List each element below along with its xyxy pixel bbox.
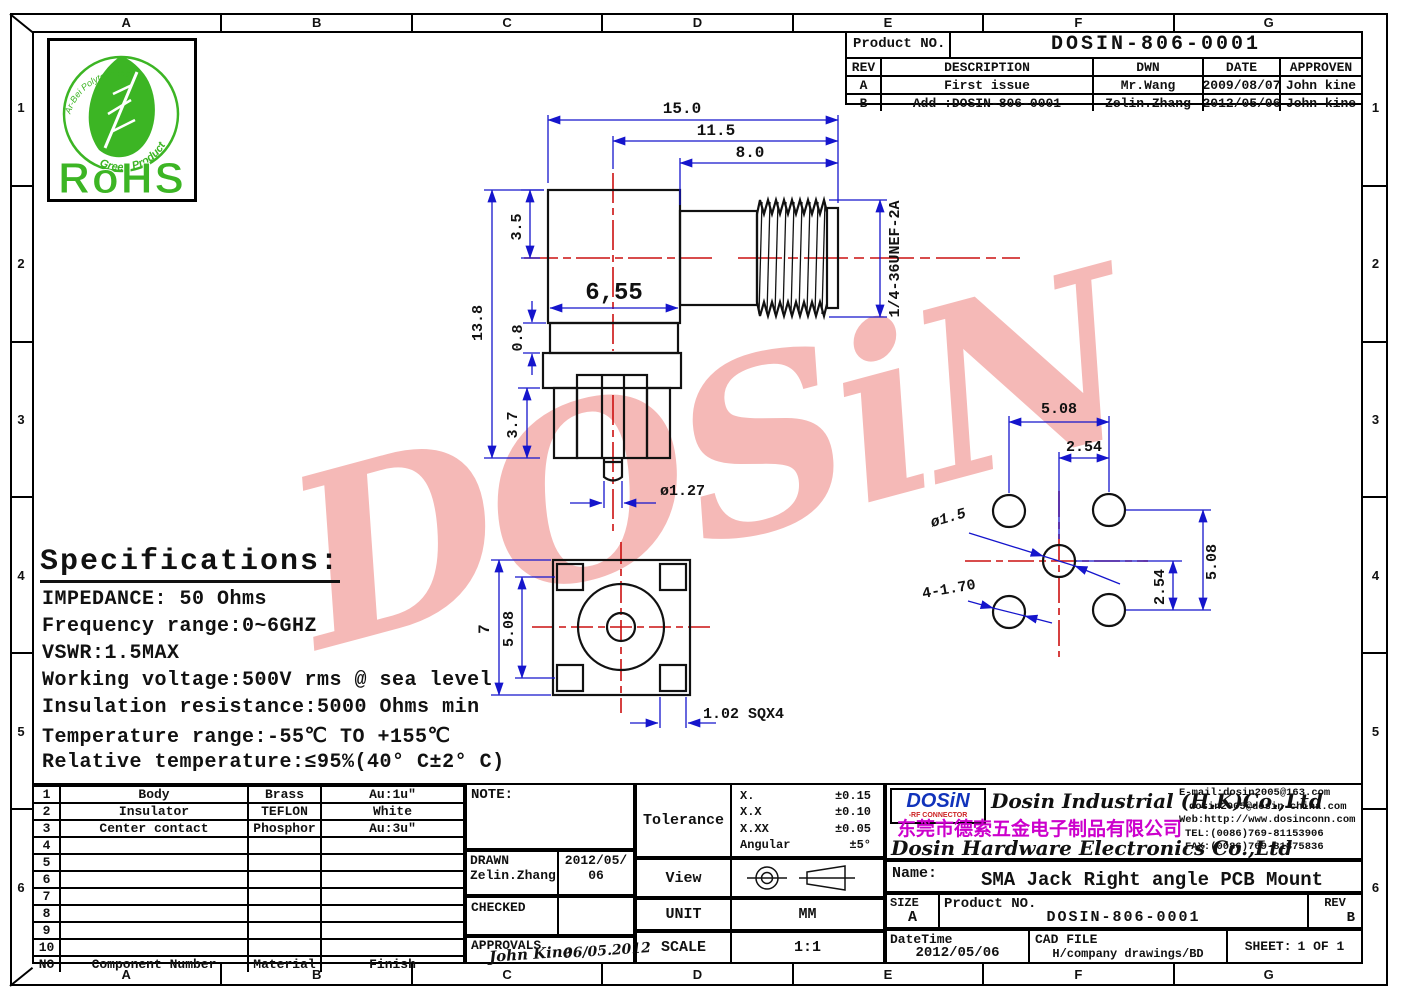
pcb-hole [1093, 594, 1125, 626]
dim-2-54-pcb-right: 2.54 [1152, 569, 1169, 605]
grid-label: 1 [1363, 31, 1388, 185]
parts-table-cell [247, 940, 320, 955]
dim-0-8: 0.8 [510, 324, 527, 351]
dosin-logo-text: DOSiN [892, 790, 984, 812]
grid-label: 4 [1363, 496, 1388, 652]
grid-label: 6 [1363, 808, 1388, 964]
contact-email-1: E-mail:dosin2005@163.com [1179, 787, 1359, 801]
grid-label: 2 [1363, 185, 1388, 341]
parts-table-row: 10 [34, 938, 463, 955]
parts-table-cell: 8 [34, 906, 59, 921]
parts-table-cell: 3 [34, 821, 59, 836]
parts-table-cell [59, 838, 247, 853]
parts-table-row: 1BodyBrassAu:1u" [34, 785, 463, 802]
technical-drawing: 15.0 11.5 8.0 3.5 13.8 0.8 3.7 6,55 ø1.2… [420, 95, 1240, 755]
scale-value: 1:1 [732, 933, 883, 962]
parts-table-cell [59, 923, 247, 938]
name-label: Name: [892, 865, 937, 882]
grid-columns-top: ABCDEFG [32, 13, 1363, 31]
dim-2-54-pcb-top: 2.54 [1066, 439, 1102, 456]
dwn-a: Mr.Wang [1092, 77, 1202, 93]
product-no-value: DOSIN-806-0001 [949, 31, 1361, 57]
parts-table-cell: 9 [34, 923, 59, 938]
grid-label: D [601, 13, 791, 31]
parts-table-cell [247, 855, 320, 870]
parts-table-row: 7 [34, 887, 463, 904]
tolerance-box: Tolerance X.±0.15 X.X±0.10 X.XX±0.05 Ang… [635, 783, 885, 858]
dim-11-5: 11.5 [697, 122, 735, 140]
spec-insulation: Insulation resistance:5000 Ohms min [42, 696, 480, 719]
view-box: View [635, 858, 885, 898]
scale-label: SCALE [637, 933, 732, 962]
dim-5-08-pcb-top: 5.08 [1041, 401, 1077, 418]
parts-table-cell: Au:1u" [320, 787, 463, 802]
revision-row-a: A First issue Mr.Wang 2009/08/07 John ki… [847, 75, 1361, 93]
contact-tel: TEL:(0086)769-81153906 [1179, 828, 1359, 842]
parts-table-cell: 7 [34, 889, 59, 904]
parts-table-cell [247, 872, 320, 887]
parts-table-cell: Brass [247, 787, 320, 802]
product-no-label: Product NO. [847, 31, 949, 57]
approven-b: John kine [1279, 95, 1361, 111]
grid-label: F [982, 964, 1172, 984]
dim-8-0: 8.0 [736, 144, 765, 162]
centerlines [524, 173, 1148, 713]
parts-table-cell [247, 923, 320, 938]
parts-table-cell [320, 906, 463, 921]
grid-label: 2 [10, 185, 32, 341]
thread-spec-label: 1/4-36UNEF-2A [887, 200, 904, 317]
note-box: NOTE: [465, 783, 635, 850]
parts-table-cell [59, 855, 247, 870]
spec-vswr: VSWR:1.5MAX [42, 642, 180, 665]
rohs-label: RoHS [58, 154, 186, 202]
rev-header: REV [847, 59, 880, 75]
view-label: View [637, 860, 732, 896]
rev-a: A [847, 77, 880, 93]
size-row: SIZE A Product NO. DOSIN-806-0001 REV B [885, 893, 1363, 929]
parts-table-cell [320, 855, 463, 870]
grid-label: 6 [10, 808, 32, 964]
grid-label: B [220, 13, 410, 31]
dim-15-0: 15.0 [663, 100, 701, 118]
dim-hole-1-5: ø1.5 [929, 506, 968, 532]
tol-angular-name: Angular [740, 838, 790, 852]
contact-fax: FAX:(0086)769-81875836 [1179, 841, 1359, 855]
parts-table-cell: Center contact [59, 821, 247, 836]
contact-email-2: dosin2005@dosin-china.com [1179, 801, 1359, 815]
dim-7: 7 [476, 624, 494, 634]
parts-table-cell: 1 [34, 787, 59, 802]
company-contacts: E-mail:dosin2005@163.com dosin2005@dosin… [1179, 787, 1359, 855]
company-box: DOSiN -RF CONNECTOR Dosin Industrial (H.… [885, 783, 1363, 860]
revision-table: Product NO. DOSIN-806-0001 REV DESCRIPTI… [845, 31, 1363, 105]
footer-row: DateTime 2012/05/06 CAD FILE H/company d… [885, 929, 1363, 964]
dim-13-8: 13.8 [470, 305, 487, 341]
date-a: 2009/08/07 [1202, 77, 1279, 93]
parts-table-cell [59, 906, 247, 921]
parts-table-cell [247, 906, 320, 921]
parts-table-cell [247, 889, 320, 904]
dim-5-08-flange: 5.08 [501, 611, 518, 647]
bottom-view-dimensions [491, 560, 716, 728]
dim-4-holes-1-70: 4-1.70 [921, 577, 977, 603]
parts-table-cell [320, 838, 463, 853]
tol-x-name: X. [740, 789, 754, 803]
dim-5-08-pcb-right: 5.08 [1204, 544, 1221, 580]
parts-table-cell: 6 [34, 872, 59, 887]
tol-xxx-name: X.XX [740, 822, 769, 836]
cad-file-value: H/company drawings/BD [1030, 947, 1226, 961]
title-product-no-value: DOSIN-806-0001 [940, 909, 1307, 926]
parts-table-cell: White [320, 804, 463, 819]
parts-table-cell [320, 940, 463, 955]
drawn-box: DRAWN Zelin.Zhang 2012/05/ 06 [465, 850, 635, 896]
grid-rows-right: 123456 [1363, 31, 1388, 964]
sheet-label: SHEET: [1245, 939, 1292, 954]
rohs-logo: Ar-Bei Polytech Inc. Green Product RoHS [47, 38, 197, 202]
sheet-value: 1 OF 1 [1298, 939, 1345, 954]
grid-label: 3 [10, 341, 32, 497]
datetime-value: 2012/05/06 [887, 945, 1028, 961]
grid-label: 5 [10, 652, 32, 808]
pcb-hole [993, 495, 1025, 527]
unit-value: MM [732, 900, 883, 929]
cad-file-label: CAD FILE [1035, 932, 1097, 947]
side-view-dimensions [484, 115, 887, 508]
parts-table-row: 5 [34, 853, 463, 870]
tol-xx-name: X.X [740, 805, 762, 819]
name-box: Name: SMA Jack Right angle PCB Mount [885, 860, 1363, 893]
approven-a: John kine [1279, 77, 1361, 93]
thread-top [757, 200, 827, 214]
unit-box: UNIT MM [635, 898, 885, 931]
dim-1-02-sqx4: 1.02 SQX4 [703, 706, 784, 723]
grid-label: E [792, 13, 982, 31]
checked-box: CHECKED [465, 896, 635, 936]
dim-1-27: ø1.27 [660, 483, 705, 500]
drawing-sheet: DOSiN ABCDEFG ABCDEFG 123456 123456 Ar-B… [0, 0, 1404, 992]
grid-label: 1 [10, 31, 32, 185]
unit-label: UNIT [637, 900, 732, 929]
grid-label: F [982, 13, 1172, 31]
parts-table-cell: TEFLON [247, 804, 320, 819]
parts-table-cell [320, 872, 463, 887]
parts-table-cell: 2 [34, 804, 59, 819]
spec-impedance: IMPEDANCE: 50 Ohms [42, 588, 267, 611]
dwn-header: DWN [1092, 59, 1202, 75]
parts-table-row: 3Center contactPhosphorAu:3u" [34, 819, 463, 836]
projection-symbol-icon [745, 861, 871, 895]
spec-temperature: Temperature range:-55℃ TO +155℃ [42, 723, 450, 749]
date-header: DATE [1202, 59, 1279, 75]
parts-table-cell: 5 [34, 855, 59, 870]
grid-label: 5 [1363, 652, 1388, 808]
part-name-value: SMA Jack Right angle PCB Mount [947, 869, 1357, 891]
grid-label: 3 [1363, 341, 1388, 497]
pcb-dim-labels: 5.08 2.54 5.08 2.54 ø1.5 4-1.70 [921, 401, 1221, 605]
parts-table-cell: 10 [34, 940, 59, 955]
drawn-date-1: 2012/05/ [559, 853, 633, 868]
title-rev-value: B [1347, 910, 1355, 926]
contact-web: Web:http://www.dosinconn.com [1179, 814, 1359, 828]
note-label: NOTE: [471, 787, 513, 803]
parts-table-cell: Au:3u" [320, 821, 463, 836]
grid-label: 4 [10, 496, 32, 652]
grid-label: C [411, 13, 601, 31]
parts-table-cell [247, 838, 320, 853]
tolerance-label: Tolerance [637, 785, 732, 856]
specifications-title: Specifications: [40, 545, 340, 583]
grid-label: G [1173, 13, 1363, 31]
title-rev-label: REV [1309, 896, 1361, 910]
scale-box: SCALE 1:1 [635, 931, 885, 964]
parts-table-row: 6 [34, 870, 463, 887]
drawn-name: Zelin.Zhang [470, 868, 554, 883]
tol-xx-value: ±0.10 [835, 805, 871, 819]
tol-xxx-value: ±0.05 [835, 822, 871, 836]
size-value: A [887, 909, 938, 926]
parts-header-row: NO Component Number Material Finish [34, 955, 463, 972]
drawn-date-2: 06 [559, 868, 633, 883]
parts-table-cell: 4 [34, 838, 59, 853]
grid-rows-left: 123456 [10, 31, 32, 964]
approven-header: APPROVEN [1279, 59, 1361, 75]
tol-angular-value: ±5° [849, 838, 871, 852]
parts-header-material: Material [247, 957, 320, 972]
parts-table-cell [320, 889, 463, 904]
approvals-box: APPROVALS John Kine 06/05.2012 [465, 936, 635, 964]
dim-3-5: 3.5 [509, 213, 526, 240]
parts-table: 1BodyBrassAu:1u"2InsulatorTEFLONWhite3Ce… [32, 783, 465, 964]
drawn-label: DRAWN [470, 853, 554, 868]
pcb-hole [1093, 494, 1125, 526]
grid-label: E [792, 964, 982, 984]
size-label: SIZE [890, 896, 919, 910]
parts-header-no: NO [34, 957, 59, 972]
dim-6-55: 6,55 [585, 280, 643, 307]
parts-table-row: 9 [34, 921, 463, 938]
grid-label: A [32, 13, 220, 31]
parts-table-row: 4 [34, 836, 463, 853]
grid-label: G [1173, 964, 1363, 984]
grid-label: D [601, 964, 791, 984]
parts-header-finish: Finish [320, 957, 463, 972]
parts-table-cell [59, 940, 247, 955]
parts-table-cell [320, 923, 463, 938]
desc-a: First issue [880, 77, 1092, 93]
parts-table-cell: Phosphor [247, 821, 320, 836]
spec-frequency: Frequency range:0~6GHZ [42, 615, 317, 638]
checked-label: CHECKED [471, 900, 526, 915]
parts-header-component: Component Number [59, 957, 247, 972]
parts-table-row: 8 [34, 904, 463, 921]
parts-table-cell [59, 889, 247, 904]
parts-table-cell [59, 872, 247, 887]
dim-3-7: 3.7 [505, 411, 522, 438]
tol-x-value: ±0.15 [835, 789, 871, 803]
description-header: DESCRIPTION [880, 59, 1092, 75]
parts-table-cell: Body [59, 787, 247, 802]
parts-table-row: 2InsulatorTEFLONWhite [34, 802, 463, 819]
parts-table-cell: Insulator [59, 804, 247, 819]
